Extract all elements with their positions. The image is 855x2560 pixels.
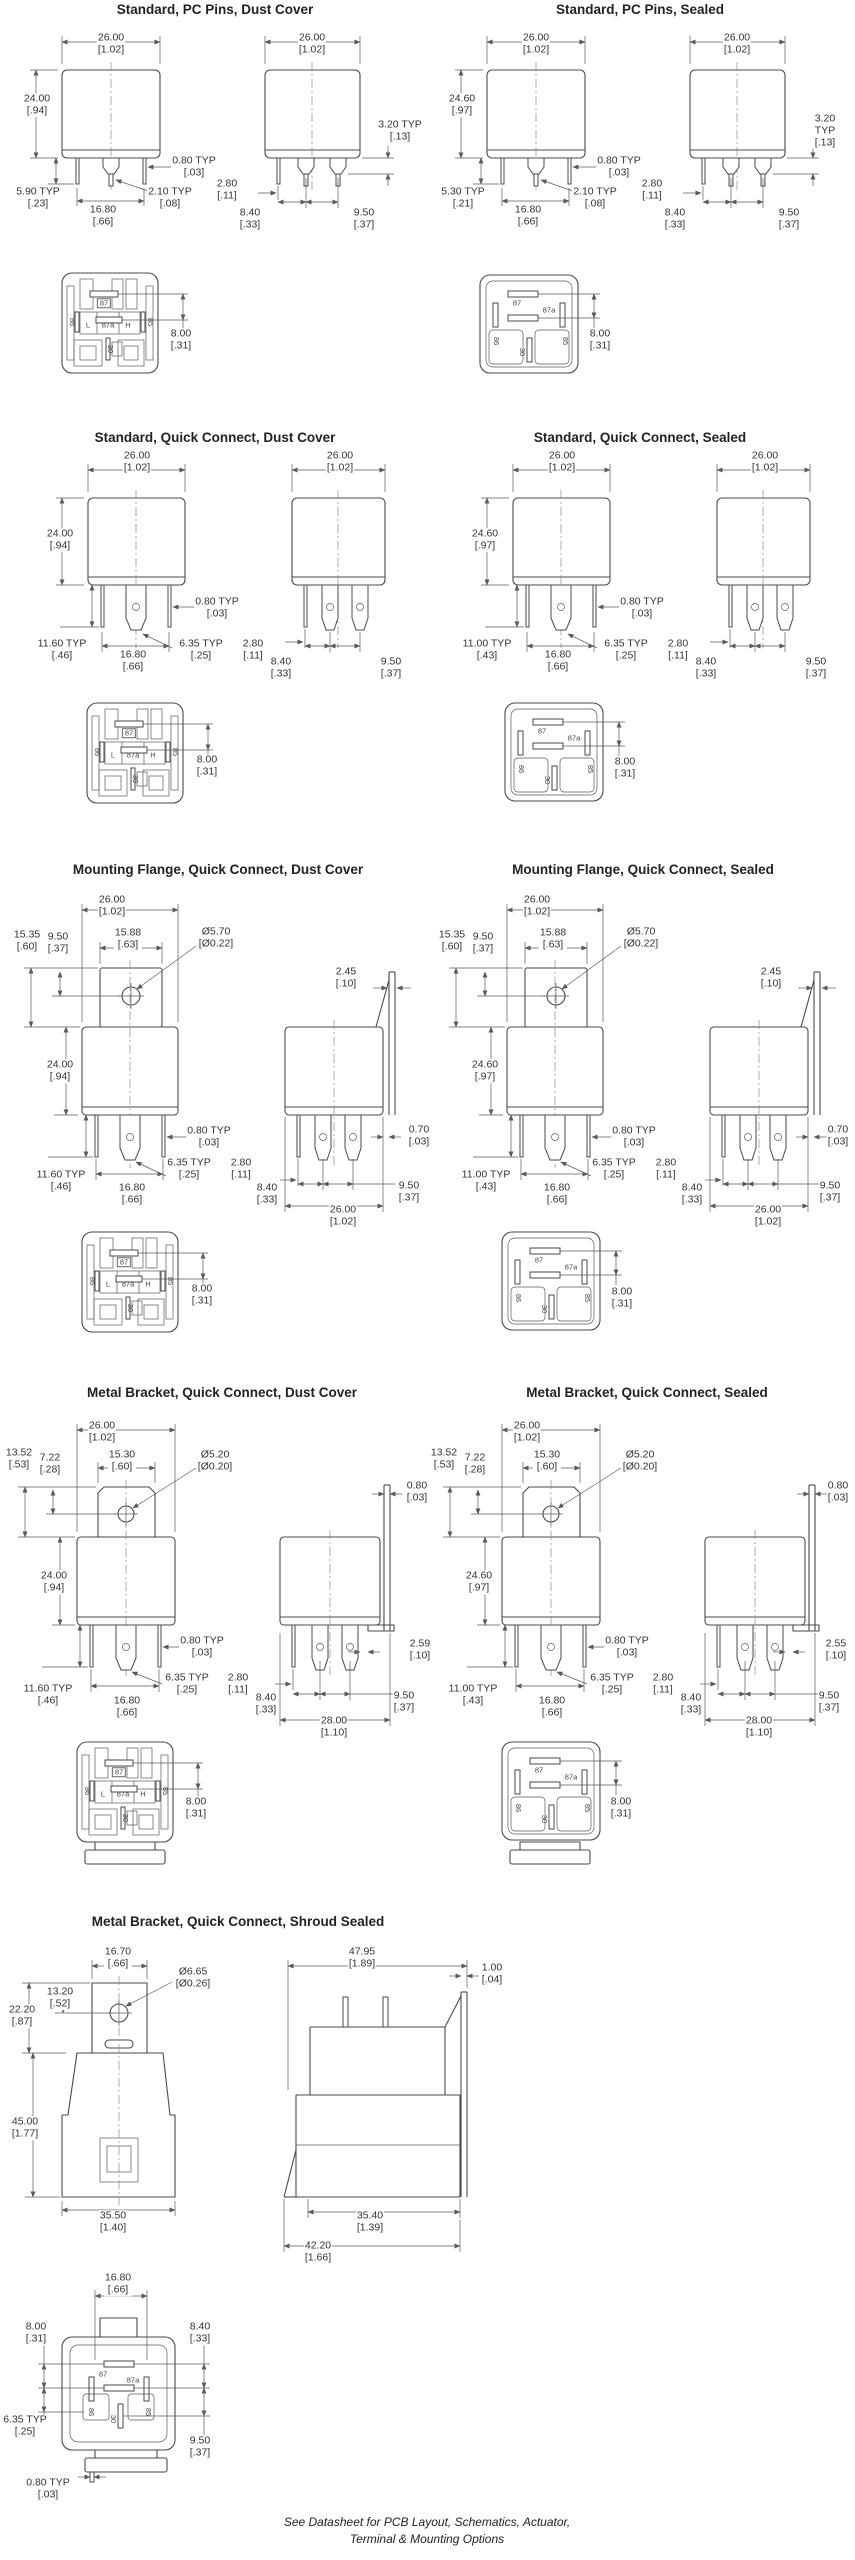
drawing-standard-qc-sealed: [481, 464, 810, 801]
dim-pin-width: 0.80 TYP [.03]: [596, 155, 642, 179]
pin-label-L: L: [86, 321, 90, 329]
dim-pin-spacing-2: 9.50 [.37]: [805, 656, 827, 680]
pin-label-85: 85: [561, 337, 569, 345]
pin-label-H: H: [125, 321, 130, 329]
dim-gap: 2.80 [.11]: [641, 178, 663, 202]
dim-pin-width: 0.80 TYP [.03]: [194, 596, 240, 620]
dim-pin-spacing-1: 8.40 [.33]: [256, 1182, 278, 1206]
dim-front-width: 26.00 [1.02]: [513, 1420, 541, 1444]
dim-qc-width: 6.35 TYP [.25]: [178, 638, 224, 662]
dim-hole-diameter: Ø5.70 [Ø0.22]: [623, 926, 659, 950]
section-title: Mounting Flange, Quick Connect, Sealed: [512, 862, 774, 877]
section-title: Metal Bracket, Quick Connect, Shroud Sea…: [92, 1914, 385, 1929]
pin-label-H: H: [150, 751, 155, 759]
dim-pin-length: 11.60 TYP [.46]: [36, 1169, 87, 1193]
dim-bracket-width: 15.30 [.60]: [108, 1449, 136, 1473]
dim-gap: 2.80 [.11]: [227, 1672, 249, 1696]
dim-side-base-width: 35.40 [1.39]: [356, 2210, 384, 2234]
pin-label-87a: 87a: [565, 1263, 578, 1271]
dim-front-width: 26.00 [1.02]: [123, 450, 151, 474]
pin-label-85: 85: [586, 765, 594, 773]
dim-pin-width: 0.80 TYP [.03]: [179, 1635, 225, 1659]
pin-label-86: 86: [83, 1787, 91, 1795]
pin-label-L: L: [106, 1280, 110, 1288]
dim-bottom: 8.00 [.31]: [170, 328, 192, 352]
dim-bottom-right: 8.40 [.33]: [189, 2321, 211, 2345]
dim-height: 24.00 [.94]: [23, 93, 51, 117]
pin-label-85: 85: [144, 2408, 152, 2416]
pin-label-30: 30: [126, 1304, 134, 1312]
dim-gap: 2.80 [.11]: [216, 178, 238, 202]
dim-front-width: 26.00 [1.02]: [522, 32, 550, 56]
pin-label-L: L: [101, 1790, 105, 1798]
drawing-standard-pc-pins-dust-cover: [30, 36, 394, 373]
dim-pin-pitch: 16.80 [.66]: [113, 1695, 141, 1719]
dim-bracket-height: 22.20 [.87]: [8, 2004, 36, 2028]
dim-base-width: 28.00 [1.10]: [320, 1715, 348, 1739]
dim-bracket-height: 13.52 [.53]: [5, 1447, 33, 1471]
dim-pin-length: 11.00 TYP [.43]: [461, 1169, 512, 1193]
dim-pin-length: 11.60 TYP [.46]: [23, 1683, 74, 1707]
dim-pin-spacing-2: 9.50 [.37]: [380, 656, 402, 680]
pin-label-86: 86: [492, 337, 500, 345]
dim-bottom: 8.00 [.31]: [185, 1796, 207, 1820]
dim-front-width: 26.00 [1.02]: [88, 1420, 116, 1444]
pin-label-87a: 87a: [102, 321, 115, 329]
dim-tab-thickness: 0.70 [.03]: [827, 1124, 849, 1148]
dim-pin-spacing-2: 9.50 [.37]: [819, 1180, 841, 1204]
dim-side-width: 47.95 [1.89]: [348, 1946, 376, 1970]
dim-height: 45.00 [1.77]: [11, 2116, 39, 2140]
dim-pin-spacing-1: 8.40 [.33]: [664, 207, 686, 231]
dim-gap: 2.80 [.11]: [652, 1672, 674, 1696]
dim-flange-thickness: 2.45 [.10]: [760, 966, 782, 990]
dim-gap: 2.80 [.11]: [667, 638, 689, 662]
dim-base-width: 26.00 [1.02]: [754, 1204, 782, 1228]
pin-label-87: 87: [117, 1257, 131, 1267]
dim-qc-width: 6.35 TYP [.25]: [164, 1672, 210, 1696]
dim-bottom-spacing: 9.50 [.37]: [189, 2435, 211, 2459]
dim-pin-pitch: 16.80 [.66]: [544, 649, 572, 673]
dim-qc-width: 6.35 TYP [.25]: [589, 1672, 635, 1696]
dim-bottom: 8.00 [.31]: [610, 1796, 632, 1820]
pin-label-86: 86: [87, 2408, 95, 2416]
pin-label-87a: 87a: [117, 1790, 130, 1798]
dim-pin-length: 5.30 TYP [.21]: [440, 186, 486, 210]
dim-pin-width: 0.80 TYP [.03]: [619, 596, 665, 620]
pin-label-85: 85: [583, 1294, 591, 1302]
dim-bottom: 8.00 [.31]: [196, 754, 218, 778]
dim-pin-pitch: 16.80 [.66]: [119, 649, 147, 673]
pin-label-85: 85: [161, 1787, 169, 1795]
pin-label-L: L: [111, 751, 115, 759]
dim-pin-width: 0.80 TYP [.03]: [604, 1635, 650, 1659]
dim-pin-spacing-1: 8.40 [.33]: [681, 1182, 703, 1206]
dim-hole-offset: 7.22 [.28]: [464, 1452, 486, 1476]
dim-height: 24.60 [.97]: [471, 1059, 499, 1083]
dim-hole-diameter: Ø5.20 [Ø0.20]: [622, 1449, 658, 1473]
dim-bracket-thickness: 0.80 [.03]: [406, 1480, 428, 1504]
dim-flange-thickness: 2.45 [.10]: [335, 966, 357, 990]
dim-tab: 3.20 TYP [.13]: [810, 113, 840, 148]
dim-height: 24.00 [.94]: [46, 528, 74, 552]
dim-qc-width: 6.35 TYP [.25]: [166, 1157, 212, 1181]
dim-hole-diameter: Ø5.20 [Ø0.20]: [197, 1449, 233, 1473]
footer-note-line1: See Datasheet for PCB Layout, Schematics…: [284, 2515, 570, 2529]
drawing-bracket-qc-shroud-sealed: [22, 1960, 479, 2482]
dim-pin-pitch: 16.80 [.66]: [543, 1182, 571, 1206]
pin-label-87a: 87a: [122, 1280, 135, 1288]
dim-pin-spacing-2: 9.50 [.37]: [353, 207, 375, 231]
dim-pin-length: 5.90 TYP [.23]: [15, 186, 61, 210]
pin-label-86: 86: [88, 1277, 96, 1285]
section-title: Metal Bracket, Quick Connect, Sealed: [526, 1385, 768, 1400]
drawing-standard-qc-dust-cover: [56, 464, 385, 803]
dim-hole-diameter: Ø6.65 [Ø0.26]: [175, 1966, 211, 1990]
pin-label-87: 87: [97, 298, 111, 308]
dim-pin-length: 11.60 TYP [.46]: [37, 638, 88, 662]
pin-label-30: 30: [121, 1814, 129, 1822]
dim-hole-offset: 9.50 [.37]: [472, 931, 494, 955]
dim-bottom-left: 8.00 [.31]: [25, 2321, 47, 2345]
pin-label-87a: 87a: [565, 1773, 578, 1781]
pin-label-87a: 87a: [127, 2376, 140, 2384]
dim-pin-width: 0.80 TYP [.03]: [611, 1125, 657, 1149]
pin-label-87: 87: [112, 1767, 126, 1777]
dim-pin-spacing-2: 9.50 [.37]: [393, 1690, 415, 1714]
pin-label-H: H: [140, 1790, 145, 1798]
dim-pin-pitch: 16.80 [.66]: [89, 204, 117, 228]
pin-label-87: 87: [99, 2370, 107, 2378]
dim-pin-length: 11.00 TYP [.43]: [448, 1683, 499, 1707]
dim-pin-pitch: 16.80 [.66]: [538, 1695, 566, 1719]
dim-height: 24.60 [.97]: [465, 1570, 493, 1594]
section-title: Standard, PC Pins, Sealed: [556, 2, 724, 17]
pin-label-H: H: [145, 1280, 150, 1288]
dim-bottom-pitch: 16.80 [.66]: [104, 2272, 132, 2296]
dim-pin-spacing-1: 8.40 [.33]: [270, 656, 292, 680]
section-title: Metal Bracket, Quick Connect, Dust Cover: [87, 1385, 357, 1400]
dim-height: 24.00 [.94]: [46, 1059, 74, 1083]
pin-label-86: 86: [517, 765, 525, 773]
dim-flange-width: 15.88 [.63]: [539, 927, 567, 951]
dim-hole-offset: 13.20 [.52]: [46, 1986, 74, 2010]
dim-hole-diameter: Ø5.70 [Ø0.22]: [198, 926, 234, 950]
dim-flange-width: 15.88 [.63]: [114, 927, 142, 951]
dim-pin-spacing-1: 8.40 [.33]: [255, 1692, 277, 1716]
dim-base-width: 28.00 [1.10]: [745, 1715, 773, 1739]
dim-pin-spacing-1: 8.40 [.33]: [680, 1692, 702, 1716]
dim-pin-spacing-1: 8.40 [.33]: [695, 656, 717, 680]
dim-bottom-qc: 6.35 TYP [.25]: [2, 2414, 48, 2438]
footer-note-line2: Terminal & Mounting Options: [350, 2532, 504, 2546]
section-title: Standard, Quick Connect, Dust Cover: [95, 430, 336, 445]
dim-bottom: 8.00 [.31]: [611, 1286, 633, 1310]
dim-bottom: 8.00 [.31]: [614, 756, 636, 780]
dim-tab-thickness: 0.70 [.03]: [408, 1124, 430, 1148]
dim-flange-height: 15.35 [.60]: [438, 929, 466, 953]
pin-label-30: 30: [518, 348, 526, 356]
dim-bracket-width: 16.70 [.66]: [104, 1946, 132, 1970]
pin-label-87: 87: [535, 1766, 543, 1774]
dim-side-width: 26.00 [1.02]: [751, 450, 779, 474]
pin-label-85: 85: [166, 1277, 174, 1285]
dim-height: 24.60 [.97]: [471, 528, 499, 552]
pin-label-87: 87: [513, 299, 521, 307]
pin-label-30: 30: [540, 1815, 548, 1823]
dim-front-width: 26.00 [1.02]: [97, 32, 125, 56]
dim-gap: 2.80 [.11]: [230, 1157, 252, 1181]
dim-front-width: 26.00 [1.02]: [98, 894, 126, 918]
section-title: Mounting Flange, Quick Connect, Dust Cov…: [73, 862, 363, 877]
dim-shroud-thickness: 1.00 [.04]: [481, 1962, 503, 1986]
dim-gap: 2.80 [.11]: [242, 638, 264, 662]
dim-bracket-width: 15.30 [.60]: [533, 1449, 561, 1473]
dim-side-width: 26.00 [1.02]: [723, 32, 751, 56]
pin-label-30: 30: [543, 776, 551, 784]
dim-pin-spacing-2: 9.50 [.37]: [818, 1690, 840, 1714]
dim-side-offset: 2.59 [.10]: [409, 1638, 431, 1662]
dim-side-width: 26.00 [1.02]: [326, 450, 354, 474]
dim-front-width: 26.00 [1.02]: [548, 450, 576, 474]
section-title: Standard, Quick Connect, Sealed: [534, 430, 746, 445]
dim-side-width: 26.00 [1.02]: [298, 32, 326, 56]
pin-label-87: 87: [535, 1256, 543, 1264]
dim-base-width: 26.00 [1.02]: [329, 1204, 357, 1228]
dim-bottom: 8.00 [.31]: [589, 328, 611, 352]
pin-label-86: 86: [68, 318, 76, 326]
pin-label-87a: 87a: [127, 751, 140, 759]
pin-label-87a: 87a: [568, 734, 581, 742]
relay-dimension-drawing-page: Standard, PC Pins, Dust Cover Standard, …: [0, 0, 855, 2560]
pin-label-86: 86: [514, 1804, 522, 1812]
pin-label-86: 86: [514, 1294, 522, 1302]
dim-pin-pitch: 16.80 [.66]: [514, 204, 542, 228]
pin-label-30: 30: [540, 1305, 548, 1313]
pin-label-86: 86: [93, 748, 101, 756]
dim-bottom: 8.00 [.31]: [191, 1283, 213, 1307]
dim-gap: 2.80 [.11]: [655, 1157, 677, 1181]
pin-label-30: 30: [109, 2415, 117, 2423]
dim-bottom-pin-width: 0.80 TYP [.03]: [25, 2477, 71, 2501]
dim-height: 24.60 [.97]: [448, 93, 476, 117]
dim-pin-spacing-2: 9.50 [.37]: [398, 1180, 420, 1204]
section-title: Standard, PC Pins, Dust Cover: [117, 2, 314, 17]
dim-side-total-width: 42.20 [1.66]: [304, 2240, 332, 2264]
dim-tab: 3.20 TYP [.13]: [377, 119, 423, 143]
pin-label-85: 85: [171, 748, 179, 756]
pin-label-87: 87: [122, 728, 136, 738]
dim-front-width: 26.00 [1.02]: [523, 894, 551, 918]
dim-pin-width: 0.80 TYP [.03]: [186, 1125, 232, 1149]
dim-base-width: 35.50 [1.40]: [99, 2210, 127, 2234]
dim-bracket-thickness: 0.80 [.03]: [827, 1480, 849, 1504]
dim-pin-spacing-2: 9.50 [.37]: [778, 207, 800, 231]
dim-height: 24.00 [.94]: [40, 1570, 68, 1594]
dim-pin-pitch: 16.80 [.66]: [118, 1182, 146, 1206]
dim-flange-height: 15.35 [.60]: [13, 929, 41, 953]
dim-hole-offset: 7.22 [.28]: [39, 1452, 61, 1476]
pin-label-85: 85: [146, 318, 154, 326]
pin-label-85: 85: [583, 1804, 591, 1812]
dim-pin-thickness: 2.10 TYP [.08]: [572, 186, 618, 210]
dim-qc-width: 6.35 TYP [.25]: [603, 638, 649, 662]
pin-label-87a: 87a: [543, 306, 556, 314]
dim-pin-width: 0.80 TYP [.03]: [171, 155, 217, 179]
dim-pin-length: 11.00 TYP [.43]: [462, 638, 513, 662]
dim-pin-spacing-1: 8.40 [.33]: [239, 207, 261, 231]
dim-pin-thickness: 2.10 TYP [.08]: [147, 186, 193, 210]
dim-hole-offset: 9.50 [.37]: [47, 931, 69, 955]
drawing-standard-pc-pins-sealed: [455, 36, 819, 373]
dim-qc-width: 6.35 TYP [.25]: [591, 1157, 637, 1181]
pin-label-30: 30: [131, 775, 139, 783]
pin-label-87: 87: [538, 727, 546, 735]
dim-side-offset: 2.55 [.10]: [825, 1638, 847, 1662]
dim-bracket-height: 13.52 [.53]: [430, 1447, 458, 1471]
pin-label-30: 30: [106, 345, 114, 353]
